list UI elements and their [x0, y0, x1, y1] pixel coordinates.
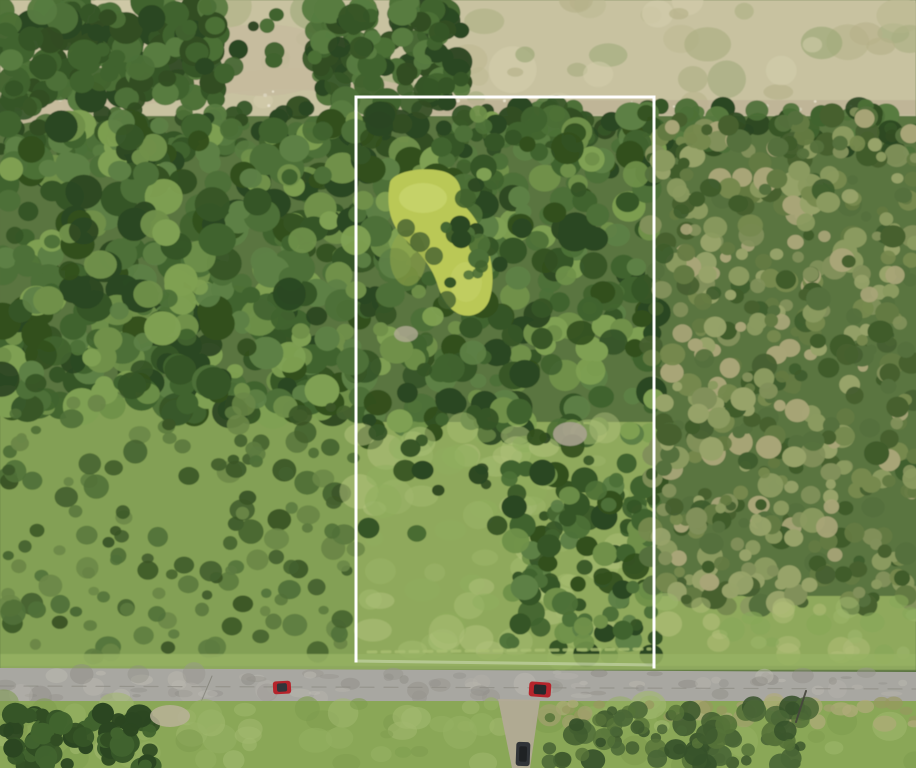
dark-car-on-driveway-roof: [519, 746, 527, 762]
road-and-foreground-layer: [0, 662, 916, 768]
aerial-photo-canvas: [0, 0, 916, 768]
aerial-photo: [0, 0, 916, 768]
red-pickup-on-road-roof: [534, 684, 547, 694]
bare-soil-patch: [394, 326, 418, 342]
terrain-layer: [0, 0, 916, 670]
red-pickup-on-road: [529, 681, 552, 697]
dirt-patch-below-road: [150, 705, 190, 727]
top-left-forest: [0, 0, 230, 113]
gray-rock-mound: [553, 422, 587, 446]
red-car-on-road-roof: [277, 683, 288, 692]
red-car-on-road: [273, 681, 292, 695]
dark-car-on-driveway: [516, 742, 531, 766]
